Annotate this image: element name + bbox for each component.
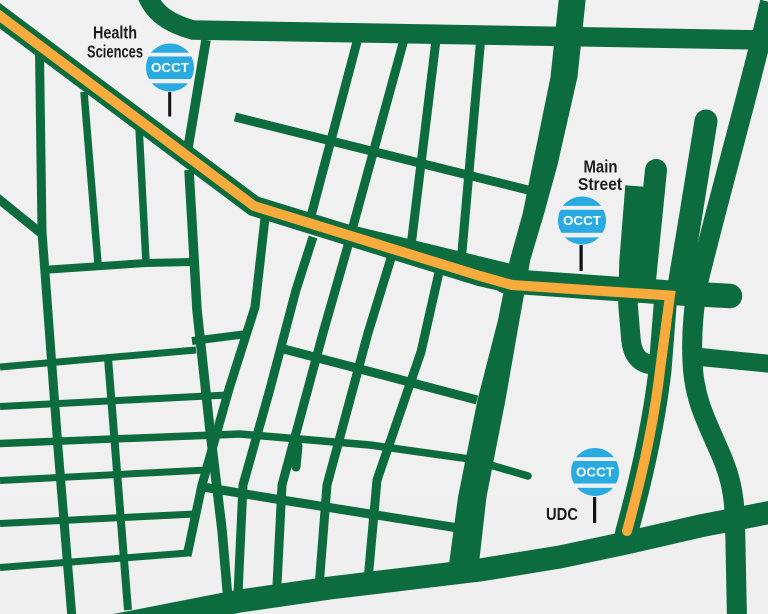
svg-text:OCCT: OCCT — [576, 465, 614, 480]
svg-text:OCCT: OCCT — [151, 60, 189, 75]
svg-text:UDC: UDC — [546, 504, 578, 524]
svg-text:OCCT: OCCT — [563, 213, 601, 228]
svg-text:Health: Health — [93, 23, 137, 43]
svg-text:Sciences: Sciences — [87, 41, 143, 61]
svg-text:Street: Street — [578, 174, 622, 194]
